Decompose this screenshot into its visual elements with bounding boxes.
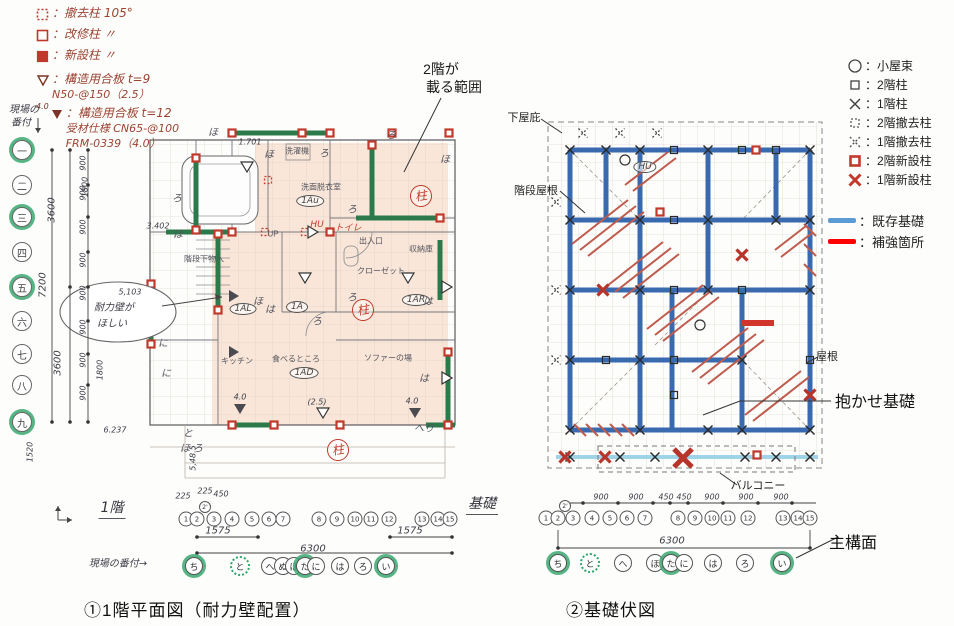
legend-row-1f-new: ：1階新設柱 xyxy=(845,170,932,189)
plan-label: に xyxy=(161,365,171,380)
square-icon xyxy=(845,77,865,93)
plan-label: 5 xyxy=(245,512,260,527)
legend-row-renovated-column: ：改修柱 〃 xyxy=(36,27,179,45)
plan-label: と xyxy=(230,556,250,576)
plan-label: 15 xyxy=(803,511,818,526)
legend-row-2f-column: ：2階柱 xyxy=(845,75,932,94)
plan-label: 9 xyxy=(330,512,345,527)
plan-label: 2 xyxy=(190,512,205,527)
plan-label: ち xyxy=(549,554,567,572)
plan-label: キッチン xyxy=(221,356,253,367)
legend-row-new-column: ：新設柱 〃 xyxy=(36,48,179,66)
plan-label: 4.0 xyxy=(406,397,419,406)
plan-label: と xyxy=(183,425,193,440)
plan-label: ろ xyxy=(354,557,372,575)
legend-row-2f-new: ：2階新設柱 xyxy=(845,151,932,170)
plan-label: ソファーの場 xyxy=(364,353,412,364)
legend-sublabel: FRM-0339（4.0） xyxy=(66,137,161,150)
plan-label: ほ xyxy=(440,151,450,166)
plan-label: 1575 xyxy=(205,526,230,537)
plan-label: 4.0 xyxy=(234,393,247,402)
plan-label: ほ xyxy=(173,226,183,241)
filled-triangle-icon xyxy=(50,108,66,124)
legend-row-1f-column: ：1階柱 xyxy=(845,94,932,113)
roof-callout: 屋根 xyxy=(816,348,838,364)
plan-label: 450 xyxy=(658,493,673,502)
pillar-stamp: 柱 xyxy=(408,183,433,208)
plan-label: 6300 xyxy=(659,536,684,547)
plan-label: 900 xyxy=(79,185,88,200)
legend-label: ：1階新設柱 xyxy=(865,171,932,188)
legend-row-existing-foundation: ：既存基礎 xyxy=(828,210,924,231)
legend-note-40: 4.0 xyxy=(36,102,49,111)
x-icon xyxy=(845,96,865,112)
plan-label: は xyxy=(704,554,722,572)
plan-label: ろ xyxy=(319,145,329,160)
plan-label: 出入口 xyxy=(359,236,383,247)
plan-label: 900 xyxy=(79,319,88,334)
plan-label: ほ xyxy=(180,440,190,455)
right-drawing-title: ②基礎伏図 xyxy=(566,596,656,621)
second-floor-area-callout: 載る範囲 xyxy=(426,77,482,97)
plan-label: ほ xyxy=(253,293,263,308)
plan-label: 900 xyxy=(79,155,88,170)
filled-red-square-icon xyxy=(36,50,52,66)
plan-label: 13 xyxy=(415,512,430,527)
plan-label: 225 xyxy=(197,487,212,496)
plan-label: ろ xyxy=(193,440,203,455)
plan-label: 洗濯機 xyxy=(285,146,309,157)
plan-label: UP xyxy=(267,230,278,239)
plan-label: 6 xyxy=(620,511,635,526)
geya-eave-callout: 下屋庇 xyxy=(508,109,541,125)
plan-label: 900 xyxy=(704,493,719,502)
open-red-square-icon xyxy=(36,29,52,45)
plan-label: い xyxy=(377,557,395,575)
plan-label: 7200 xyxy=(38,272,49,297)
legend-label: ：2階柱 xyxy=(865,76,908,93)
plan-label: 3600 xyxy=(53,350,64,375)
plan-label: 7 xyxy=(638,511,653,526)
plan-label: 2' xyxy=(199,501,211,513)
legend-label: ：2階撤去柱 xyxy=(865,114,932,131)
plan-label: 900 xyxy=(79,385,88,400)
legend-label: ：補強箇所 xyxy=(859,232,924,251)
plan-label: 3 xyxy=(566,511,581,526)
plan-label: 9 xyxy=(688,511,703,526)
plan-label: 12 xyxy=(382,512,397,527)
plan-label: 8 xyxy=(671,511,686,526)
plan-label: 食べるところ xyxy=(272,354,320,365)
legend-row-plywood-t12: 4.0 ：構造用合板 t=12 受材仕様 CN65-@100 FRM-0339（… xyxy=(36,106,179,151)
row-axis-6: 六 xyxy=(12,311,32,331)
plan-label: 3 xyxy=(207,512,222,527)
red-bar-icon xyxy=(828,239,856,244)
scanned-drawing-sheet: { "titles": { "left": "①1階平面図（耐力壁配置）", "… xyxy=(0,0,954,626)
plan-label: 900 xyxy=(628,493,643,502)
plan-label: 7 xyxy=(276,512,291,527)
balcony-callout: バルコニー xyxy=(731,477,786,493)
plan-label: ほ xyxy=(264,146,274,161)
legend-row-1f-removed: ：1階撤去柱 xyxy=(845,132,932,151)
plan-label: 3600 xyxy=(47,197,58,222)
plan-label: HU xyxy=(633,161,656,173)
plan-label: 10 xyxy=(348,512,363,527)
plan-label: 1Au xyxy=(296,195,324,207)
plan-label: 11 xyxy=(364,512,379,527)
plan-label: 450 xyxy=(213,490,228,499)
legend-label: ：撤去柱 105° xyxy=(52,6,133,21)
plan-label: ち xyxy=(185,557,203,575)
legend-label: ：1階撤去柱 xyxy=(865,133,932,150)
plan-label: 225 xyxy=(175,492,190,501)
plan-label: 1520 xyxy=(26,442,35,462)
dakase-foundation-callout: 抱かせ基礎 xyxy=(835,388,915,412)
plan-label: 3.402 xyxy=(147,222,170,231)
plan-label: に xyxy=(675,554,693,572)
row-axis-5: 五 xyxy=(12,277,32,297)
plan-label: と xyxy=(580,553,600,573)
legend-sublabel: N50-@150（2.5） xyxy=(52,88,150,101)
legend-label: ：2階新設柱 xyxy=(865,152,932,169)
open-triangle-icon xyxy=(36,74,52,90)
plan-label: 1A xyxy=(286,301,308,313)
plan-label: ろ xyxy=(312,313,322,328)
plan-label: ろ xyxy=(347,201,357,216)
plan-label: HU xyxy=(310,220,323,230)
plan-label: 13 xyxy=(776,511,791,526)
red-square-icon xyxy=(845,153,865,169)
plan-label: い xyxy=(773,554,791,572)
plan-label: ろ xyxy=(172,190,182,205)
plan-label: 1800 xyxy=(96,360,105,380)
plan-label: ろ xyxy=(386,127,396,142)
row-axis-8: 八 xyxy=(12,375,32,395)
plan-label: ろ xyxy=(347,289,357,304)
plan-label: 1575 xyxy=(397,526,422,537)
plan-label: に xyxy=(307,557,325,575)
column-legend: ：小屋束 ：2階柱 ：1階柱 ：2階撤去柱 ：1階撤去柱 ：2階新設柱 ：1階新… xyxy=(845,56,932,189)
plan-label: へ xyxy=(614,554,632,572)
dotted-red-square-icon xyxy=(36,8,52,24)
main-frame-callout: 主構面 xyxy=(829,529,877,553)
plan-label: 900 xyxy=(79,285,88,300)
plan-label: 11 xyxy=(721,511,736,526)
legend-label: ：構造用合板 t=9 xyxy=(52,72,150,86)
plan-label: ほ xyxy=(208,124,218,139)
plan-label: クローゼット xyxy=(357,266,405,277)
plan-label: 洗面脱衣室 xyxy=(301,182,341,193)
plan-label: 収納庫 xyxy=(409,244,433,255)
row-axis-4: 四 xyxy=(12,242,32,262)
blue-bar-icon xyxy=(828,218,856,223)
stair-roof-callout: 階段屋根 xyxy=(514,182,558,198)
legend-label: ：1階柱 xyxy=(865,95,908,112)
hand-legend: ：撤去柱 105° ：改修柱 〃 ：新設柱 〃 ：構造用合板 t=9 N50-@… xyxy=(36,6,179,154)
legend-label: ：改修柱 〃 xyxy=(52,27,116,42)
second-floor-area-callout: 2階が xyxy=(423,59,459,79)
plan-label: 900 xyxy=(79,252,88,267)
plan-label: 階段下物入 xyxy=(184,254,224,265)
left-drawing-title: ①1階平面図（耐力壁配置） xyxy=(84,596,310,621)
plan-label: 1AD xyxy=(290,367,319,379)
site-banzuke-note: 番付 xyxy=(11,114,31,129)
plan-label: 2 xyxy=(551,511,566,526)
legend-row-removed-column: ：撤去柱 105° xyxy=(36,6,179,24)
cloud-note: 耐力壁が xyxy=(94,299,134,314)
plan-label: 900 xyxy=(79,352,88,367)
plan-label: (2.5) xyxy=(308,398,327,407)
legend-label: ：既存基礎 xyxy=(859,211,924,230)
circle-icon xyxy=(845,58,865,74)
legend-label: ：構造用合板 t=12 xyxy=(66,106,172,120)
legend-row-koyazuka: ：小屋束 xyxy=(845,56,932,75)
plan-label: 5 xyxy=(603,511,618,526)
plan-label: は xyxy=(423,293,433,308)
plan-label: 6300 xyxy=(300,544,325,555)
cloud-note: ほしい xyxy=(97,315,127,330)
legend-row-2f-removed: ：2階撤去柱 xyxy=(845,113,932,132)
row-axis-1: 一 xyxy=(12,140,32,160)
plan-label: 6.237 xyxy=(104,426,127,435)
pillar-stamp: 柱 xyxy=(325,437,350,462)
plan-label: は xyxy=(265,301,275,316)
plan-label: に xyxy=(158,335,168,350)
floor-plan-caption: 1階 xyxy=(99,497,126,519)
dashed-x-icon xyxy=(845,134,865,150)
foundation-legend: ：既存基礎 ：補強箇所 xyxy=(828,210,924,252)
plan-label: 1.701 xyxy=(239,138,262,147)
plan-label: は xyxy=(419,370,429,385)
plan-label: へり xyxy=(414,420,434,435)
legend-label: ：小屋束 xyxy=(865,57,913,74)
plan-label: 現場の番付→ xyxy=(89,555,147,570)
toilet-stamp: トイレ xyxy=(334,221,361,234)
plan-label: 900 xyxy=(593,493,608,502)
legend-label: ：新設柱 〃 xyxy=(52,48,116,63)
plan-label: 900 xyxy=(738,493,753,502)
foundation-plan-caption: 基礎 xyxy=(466,493,498,515)
legend-row-reinforcement: ：補強箇所 xyxy=(828,231,924,252)
plan-label: 15 xyxy=(443,512,458,527)
red-x-icon xyxy=(845,172,865,188)
row-axis-3: 三 xyxy=(12,207,32,227)
row-axis-7: 七 xyxy=(12,344,32,364)
plan-label: 900 xyxy=(773,493,788,502)
dashed-square-icon xyxy=(845,115,865,131)
plan-label: 450 xyxy=(676,493,691,502)
row-axis-2: 二 xyxy=(12,175,32,195)
plan-label: は xyxy=(331,557,349,575)
plan-label: 10 xyxy=(705,511,720,526)
row-axis-9: 九 xyxy=(12,412,32,432)
legend-row-plywood-t9: ：構造用合板 t=9 N50-@150（2.5） xyxy=(36,72,179,102)
plan-label: 6 xyxy=(262,512,277,527)
plan-label: 5,103 xyxy=(119,288,142,297)
plan-label: 4 xyxy=(585,511,600,526)
legend-sublabel: 受材仕様 CN65-@100 xyxy=(66,122,179,135)
plan-label: 4 xyxy=(225,512,240,527)
plan-label: 12 xyxy=(741,511,756,526)
plan-label: 900 xyxy=(79,219,88,234)
plan-label: 8 xyxy=(312,512,327,527)
plan-label: ろ xyxy=(736,554,754,572)
